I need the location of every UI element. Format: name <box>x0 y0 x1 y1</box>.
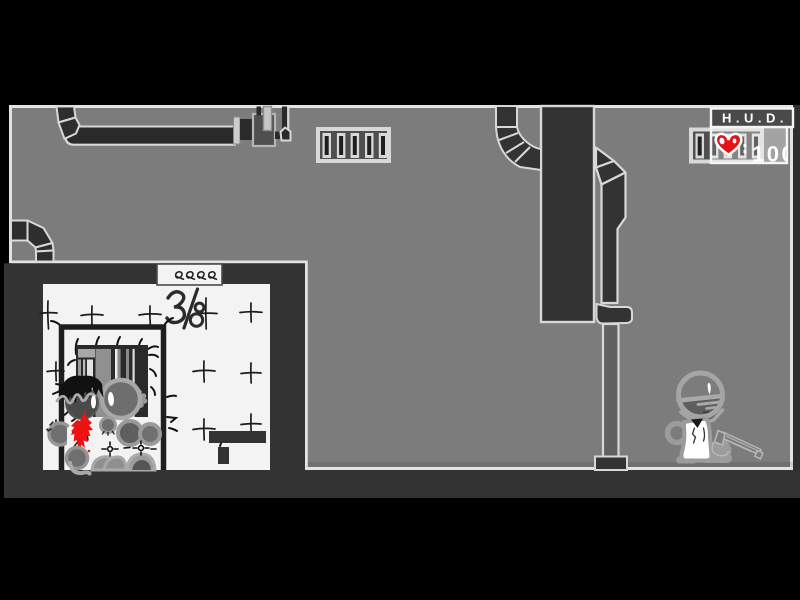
svg-text:H.U.D.: H.U.D. <box>722 111 788 126</box>
